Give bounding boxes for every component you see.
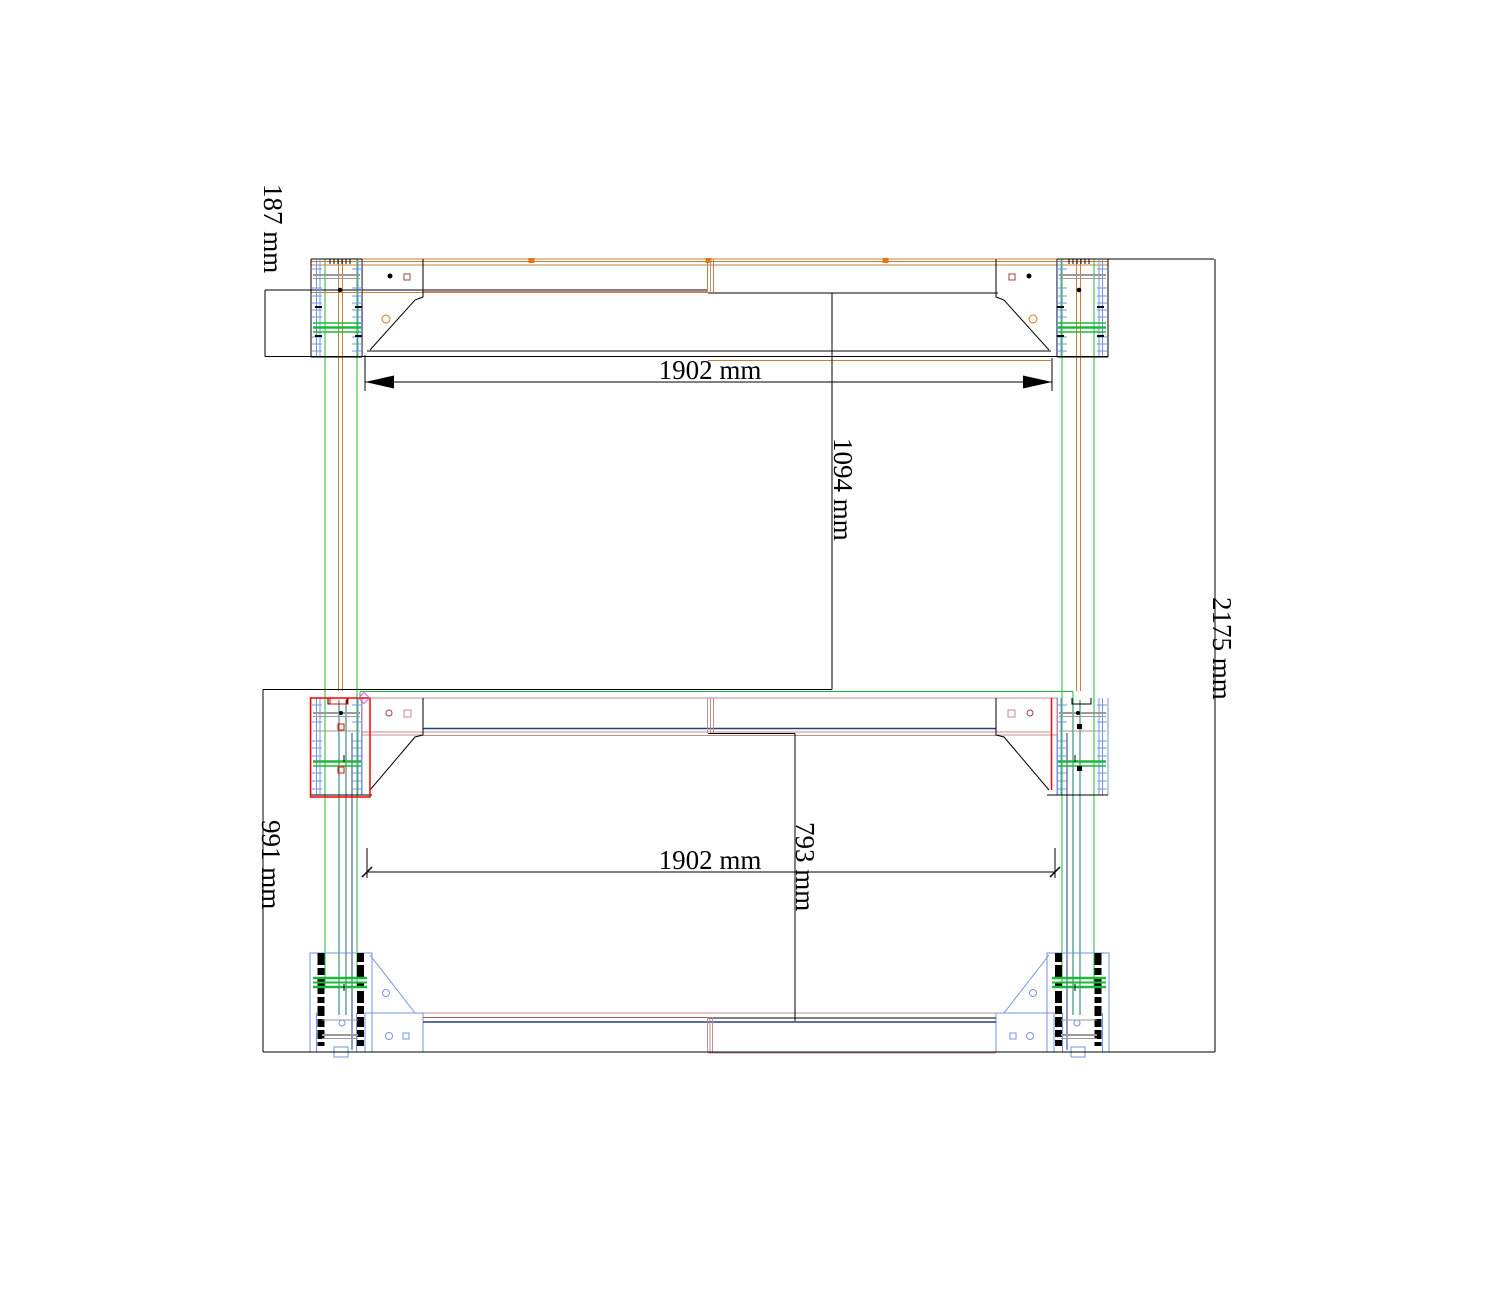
top-beam-assembly [265, 258, 1214, 361]
selection-highlight [311, 693, 1052, 798]
beam-fastener-mark [529, 258, 535, 263]
dimension-1094: 1094 mm [828, 293, 858, 690]
beam-fastener-mark [883, 258, 889, 263]
bottom-beam-assembly [310, 953, 1109, 1057]
dimension-187: 187 mm [258, 184, 288, 357]
dim-label-2175: 2175 mm [1207, 597, 1237, 700]
bolt-mark [1077, 766, 1082, 771]
dim-label-1902-top: 1902 mm [659, 355, 762, 385]
dim-label-1902-bottom: 1902 mm [659, 845, 762, 875]
cad-drawing-canvas: 187 mm 1902 mm 1094 mm 2175 mm 991 mm [0, 0, 1511, 1293]
beam-center-joint [708, 259, 714, 293]
dimension-991: 991 mm [256, 690, 286, 1053]
drawing-page: 187 mm 1902 mm 1094 mm 2175 mm 991 mm [0, 0, 1511, 1293]
dim-label-187: 187 mm [258, 184, 288, 273]
dim-label-991: 991 mm [256, 820, 286, 909]
dimension-2175: 2175 mm [1207, 259, 1237, 1052]
dim-arrow-right [1023, 376, 1052, 389]
dim-label-793: 793 mm [790, 822, 820, 911]
dimension-1902-bottom: 1902 mm [362, 845, 1060, 878]
dim-label-1094: 1094 mm [828, 438, 858, 541]
dimension-793: 793 mm [790, 734, 820, 1022]
middle-beam-assembly [263, 690, 1108, 798]
bolt-mark [1077, 724, 1082, 729]
dim-arrow-left [365, 376, 394, 389]
dimension-annotations: 187 mm 1902 mm 1094 mm 2175 mm 991 mm [256, 184, 1237, 1052]
